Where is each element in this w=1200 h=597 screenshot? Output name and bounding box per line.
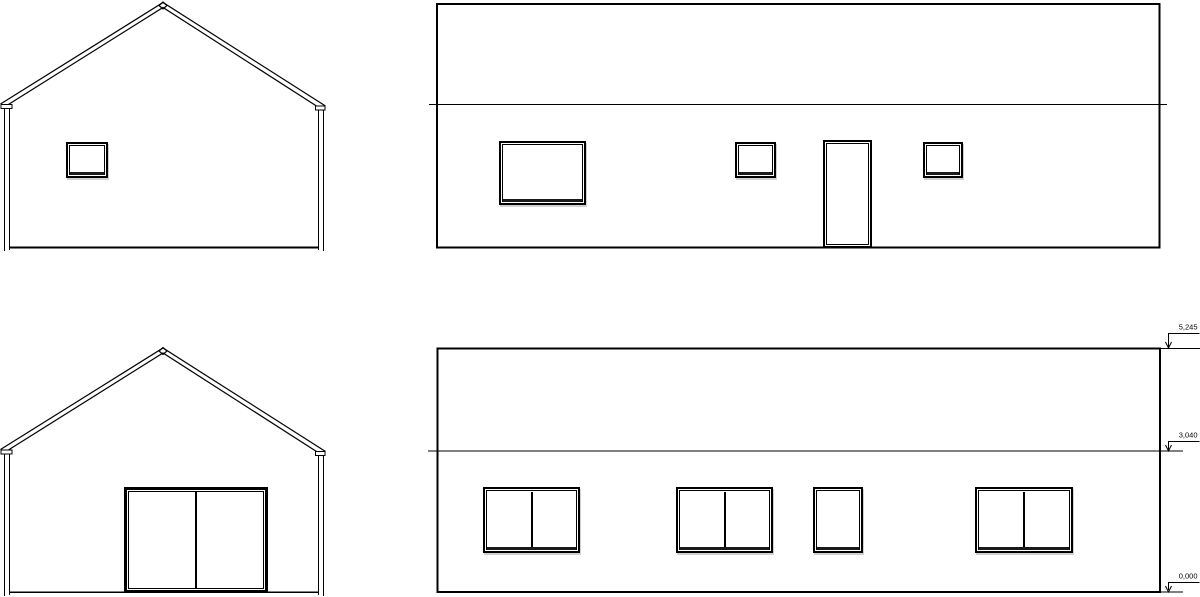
- roof-edge-inner: [2, 8, 324, 111]
- window-inner-frame: [69, 145, 105, 175]
- eave-cap-right: [316, 106, 326, 110]
- window-inner-frame: [926, 145, 960, 175]
- double-window: [676, 487, 773, 553]
- window-sill: [680, 547, 769, 550]
- large-window: [499, 141, 586, 205]
- elevation-drawing: 5,245 3,040 0,000: [0, 0, 1200, 597]
- window-mullion: [724, 492, 726, 547]
- glazed-double-door: [124, 487, 268, 593]
- door-inner-frame: [826, 143, 869, 245]
- level-marker-ground: 0,000: [1166, 572, 1200, 593]
- window-sill: [927, 172, 959, 175]
- window-inner-frame: [816, 490, 860, 550]
- elevation-side-bottom-right: [428, 349, 1183, 593]
- level-marker-ridge: 5,245: [1160, 323, 1200, 349]
- roof-edge-outer: [1, 3, 326, 107]
- level-label-eave: 3,040: [1179, 431, 1198, 440]
- double-window: [975, 487, 1073, 553]
- roof-edge-inner: [2, 353, 324, 456]
- small-window: [735, 142, 776, 178]
- door-mullion: [195, 491, 197, 588]
- window-sill: [817, 547, 859, 550]
- window-sill: [487, 547, 576, 550]
- eave-cap-left: [1, 450, 12, 454]
- window-mullion: [531, 492, 533, 547]
- building-outline: [438, 349, 1161, 593]
- level-label-ground: 0,000: [1179, 572, 1198, 581]
- window-sill: [739, 172, 772, 175]
- eave-cap-right: [316, 452, 326, 456]
- small-window: [923, 142, 963, 178]
- window-sill: [979, 547, 1069, 550]
- level-marker-eave: 3,040: [1166, 431, 1200, 452]
- building-outline: [437, 4, 1160, 248]
- roof-edge-outer: [1, 348, 326, 452]
- eave-cap-left: [1, 105, 12, 109]
- window-sill: [503, 199, 582, 202]
- window-inner-frame: [502, 144, 583, 202]
- elevation-gable-top-left: [1, 2, 326, 251]
- level-label-ridge: 5,245: [1179, 323, 1198, 332]
- single-window: [813, 487, 863, 553]
- double-window: [483, 487, 580, 553]
- window-sill: [70, 172, 104, 175]
- window-mullion: [1023, 492, 1025, 547]
- entrance-door: [823, 140, 872, 248]
- elevation-side-top-right: [429, 4, 1167, 248]
- window-inner-frame: [738, 145, 773, 175]
- small-window: [66, 142, 108, 178]
